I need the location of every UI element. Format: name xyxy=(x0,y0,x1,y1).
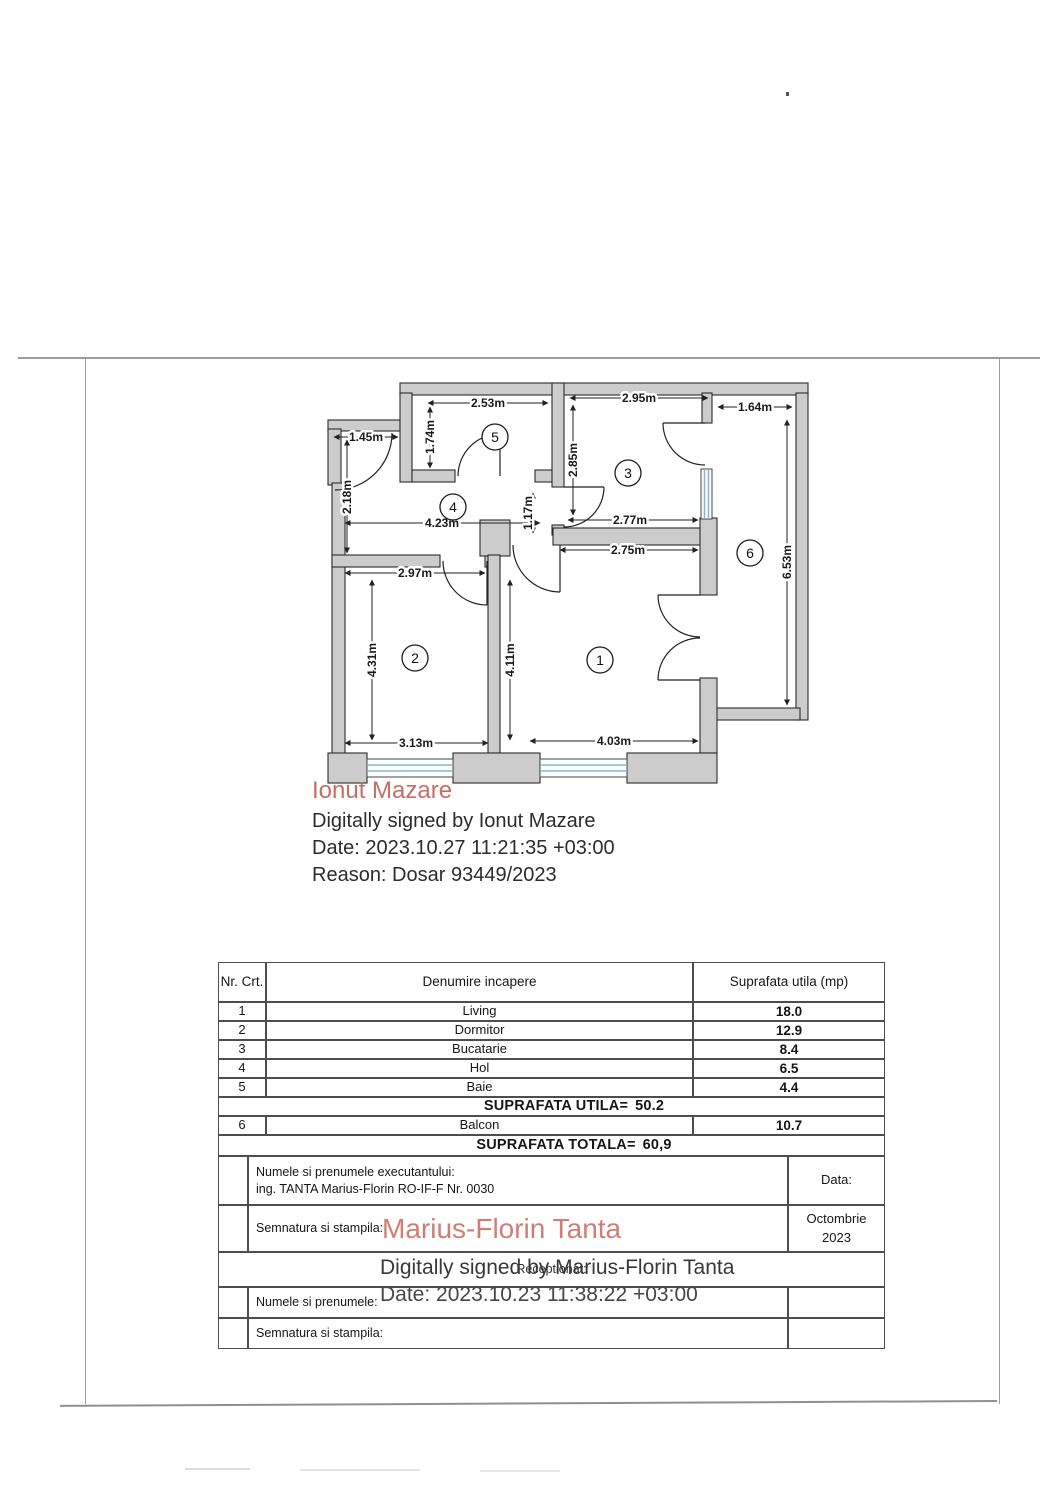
door-arc-kitchen xyxy=(564,487,604,527)
room-circle-2: 2 xyxy=(402,645,428,671)
door-arc-living-balcony-double xyxy=(658,595,700,680)
page-frame-left xyxy=(85,358,86,1404)
total-totala-value: 60,9 xyxy=(643,1137,672,1154)
semnatura2-cell: Semnatura si stampila: xyxy=(248,1318,788,1349)
dim-14: 4.11m xyxy=(503,580,517,740)
spacer-cell xyxy=(218,1156,248,1205)
svg-text:4: 4 xyxy=(449,499,457,515)
table-row-name: Hol xyxy=(266,1059,693,1078)
dim-15: 3.13m xyxy=(345,736,488,750)
scan-artifact xyxy=(480,1470,560,1472)
scan-artifact xyxy=(185,1468,250,1470)
dim-12: 2.97m xyxy=(345,566,485,580)
room-circle-3: 3 xyxy=(615,460,641,486)
svg-text:2.85m: 2.85m xyxy=(566,443,580,477)
floor-plan: 2.53m 2.95m 1.64m 1.45m 1.74m 2.85m 2.18… xyxy=(320,375,820,805)
svg-text:4.11m: 4.11m xyxy=(503,643,517,676)
svg-text:1: 1 xyxy=(596,652,604,668)
window-living xyxy=(540,759,627,777)
svg-text:1.17m: 1.17m xyxy=(521,496,535,530)
svg-text:1.64m: 1.64m xyxy=(738,400,772,414)
executant-value: ing. TANTA Marius-Florin RO-IF-F Nr. 003… xyxy=(256,1182,494,1196)
table-row-area: 18.0 xyxy=(693,1002,885,1021)
signature-signed-line: Digitally signed by Ionut Mazare xyxy=(312,810,595,833)
table-row-nr: 3 xyxy=(218,1040,266,1059)
document-page: 2.53m 2.95m 1.64m 1.45m 1.74m 2.85m 2.18… xyxy=(0,0,1058,1496)
dim-9: 2.77m xyxy=(568,513,698,527)
svg-text:3.13m: 3.13m xyxy=(399,736,433,750)
dim-16: 4.03m xyxy=(530,734,698,748)
svg-text:2.53m: 2.53m xyxy=(471,396,505,410)
svg-text:2.75m: 2.75m xyxy=(611,543,645,557)
table-row-nr: 6 xyxy=(218,1116,266,1135)
table-row-area: 6.5 xyxy=(693,1059,885,1078)
svg-text:1.74m: 1.74m xyxy=(423,420,437,454)
table-header-area: Suprafata utila (mp) xyxy=(693,962,885,1002)
data-label-cell: Data: xyxy=(788,1156,885,1205)
svg-text:6: 6 xyxy=(746,545,754,561)
table-row-name: Balcon xyxy=(266,1116,693,1135)
room-circle-6: 6 xyxy=(737,540,763,566)
total-totala-row: SUPRAFATA TOTALA= 60,9 xyxy=(218,1135,885,1156)
table-row-area: 10.7 xyxy=(693,1116,885,1135)
total-utila-row: SUPRAFATA UTILA= 50.2 xyxy=(218,1097,885,1116)
date-year: 2023 xyxy=(822,1231,851,1246)
total-utila-label: SUPRAFATA UTILA= xyxy=(484,1098,628,1115)
table-row-area: 8.4 xyxy=(693,1040,885,1059)
area-value: 4.4 xyxy=(780,1080,799,1096)
table-header-nr: Nr. Crt. xyxy=(218,962,266,1002)
signature-date-line: Date: 2023.10.27 11:21:35 +03:00 xyxy=(312,837,615,860)
table-header-name: Denumire incapere xyxy=(266,962,693,1002)
area-value: 12.9 xyxy=(776,1023,802,1039)
door-arc-kitchen-balcony xyxy=(663,423,705,465)
spacer-cell xyxy=(218,1205,248,1252)
empty-cell xyxy=(788,1318,885,1349)
signature-name-marius: Marius-Florin Tanta xyxy=(382,1213,621,1245)
svg-text:2.95m: 2.95m xyxy=(622,391,656,405)
area-value: 6.5 xyxy=(780,1061,799,1077)
door-arc-living xyxy=(513,545,560,592)
table-row-area: 4.4 xyxy=(693,1078,885,1097)
signature-reason-line: Reason: Dosar 93449/2023 xyxy=(312,864,557,887)
area-value: 8.4 xyxy=(780,1042,799,1058)
dim-2: 1.64m xyxy=(718,400,792,414)
dim-11: 6.53m xyxy=(780,420,794,705)
empty-cell xyxy=(788,1287,885,1318)
svg-text:5: 5 xyxy=(491,429,499,445)
window-bedroom xyxy=(367,759,453,777)
svg-text:1.45m: 1.45m xyxy=(349,430,383,444)
svg-text:2: 2 xyxy=(411,650,419,666)
table-row-nr: 1 xyxy=(218,1002,266,1021)
table-row-nr: 4 xyxy=(218,1059,266,1078)
spacer-cell xyxy=(218,1287,248,1318)
room-circle-1: 1 xyxy=(587,647,613,673)
dim-5: 2.85m xyxy=(566,405,580,515)
spacer-cell xyxy=(218,1318,248,1349)
table-row-name: Baie xyxy=(266,1078,693,1097)
signature-date-line-bottom: Date: 2023.10.23 11:38:22 +03:00 xyxy=(380,1283,698,1307)
scan-artifact xyxy=(300,1469,420,1471)
table-row-name: Bucatarie xyxy=(266,1040,693,1059)
date-month: Octombrie xyxy=(807,1212,867,1227)
signature-name-ionut: Ionut Mazare xyxy=(312,777,452,805)
windows xyxy=(367,469,712,777)
table-row-name: Living xyxy=(266,1002,693,1021)
room-circle-4: 4 xyxy=(440,494,466,520)
scan-speck xyxy=(786,92,789,96)
table-row-area: 12.9 xyxy=(693,1021,885,1040)
executant-label: Numele si prenumele executantului: xyxy=(256,1165,455,1179)
area-value: 10.7 xyxy=(776,1118,802,1134)
signature-signed-line-bottom: Digitally signed by Marius-Florin Tanta xyxy=(380,1256,734,1280)
dim-4: 1.74m xyxy=(423,407,437,468)
page-frame-right xyxy=(999,358,1000,1404)
svg-text:4.03m: 4.03m xyxy=(597,734,631,748)
svg-text:6.53m: 6.53m xyxy=(780,545,794,579)
svg-text:2.77m: 2.77m xyxy=(613,513,647,527)
dim-7: 4.23m xyxy=(345,516,540,530)
table-row-nr: 5 xyxy=(218,1078,266,1097)
svg-text:3: 3 xyxy=(624,465,632,481)
doors xyxy=(335,423,705,680)
table-row-nr: 2 xyxy=(218,1021,266,1040)
room-circle-5: 5 xyxy=(482,424,508,450)
svg-text:4.31m: 4.31m xyxy=(365,643,379,677)
page-frame-top xyxy=(18,357,1040,359)
door-arc-bedroom xyxy=(443,561,487,605)
page-frame-bottom xyxy=(60,1400,997,1407)
dim-8: 1.17m xyxy=(521,493,535,533)
window-kitchen-balcony xyxy=(701,469,712,519)
date-value-cell: Octombrie 2023 xyxy=(788,1205,885,1252)
dim-0: 2.53m xyxy=(428,396,548,410)
total-totala-label: SUPRAFATA TOTALA= xyxy=(476,1137,635,1154)
svg-text:2.18m: 2.18m xyxy=(340,480,354,514)
executant-cell: Numele si prenumele executantului: ing. … xyxy=(248,1156,788,1205)
dim-3: 1.45m xyxy=(334,430,398,444)
dim-13: 4.31m xyxy=(365,580,379,740)
area-value: 18.0 xyxy=(776,1004,802,1020)
table-row-name: Dormitor xyxy=(266,1021,693,1040)
svg-text:2.97m: 2.97m xyxy=(398,566,432,580)
total-utila-value: 50.2 xyxy=(635,1098,664,1115)
